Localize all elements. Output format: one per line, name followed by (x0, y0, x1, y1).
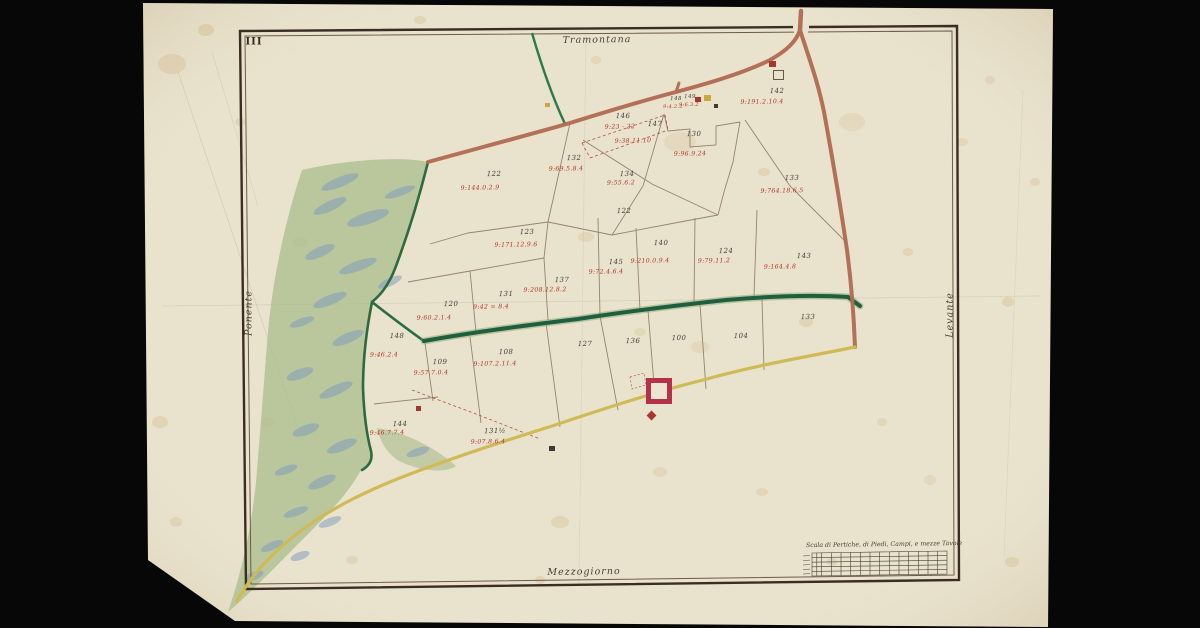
map-drawing (0, 0, 1200, 628)
scanned-map-sheet: III Tramontana Mezzogiorno Ponente Levan… (0, 0, 1200, 628)
